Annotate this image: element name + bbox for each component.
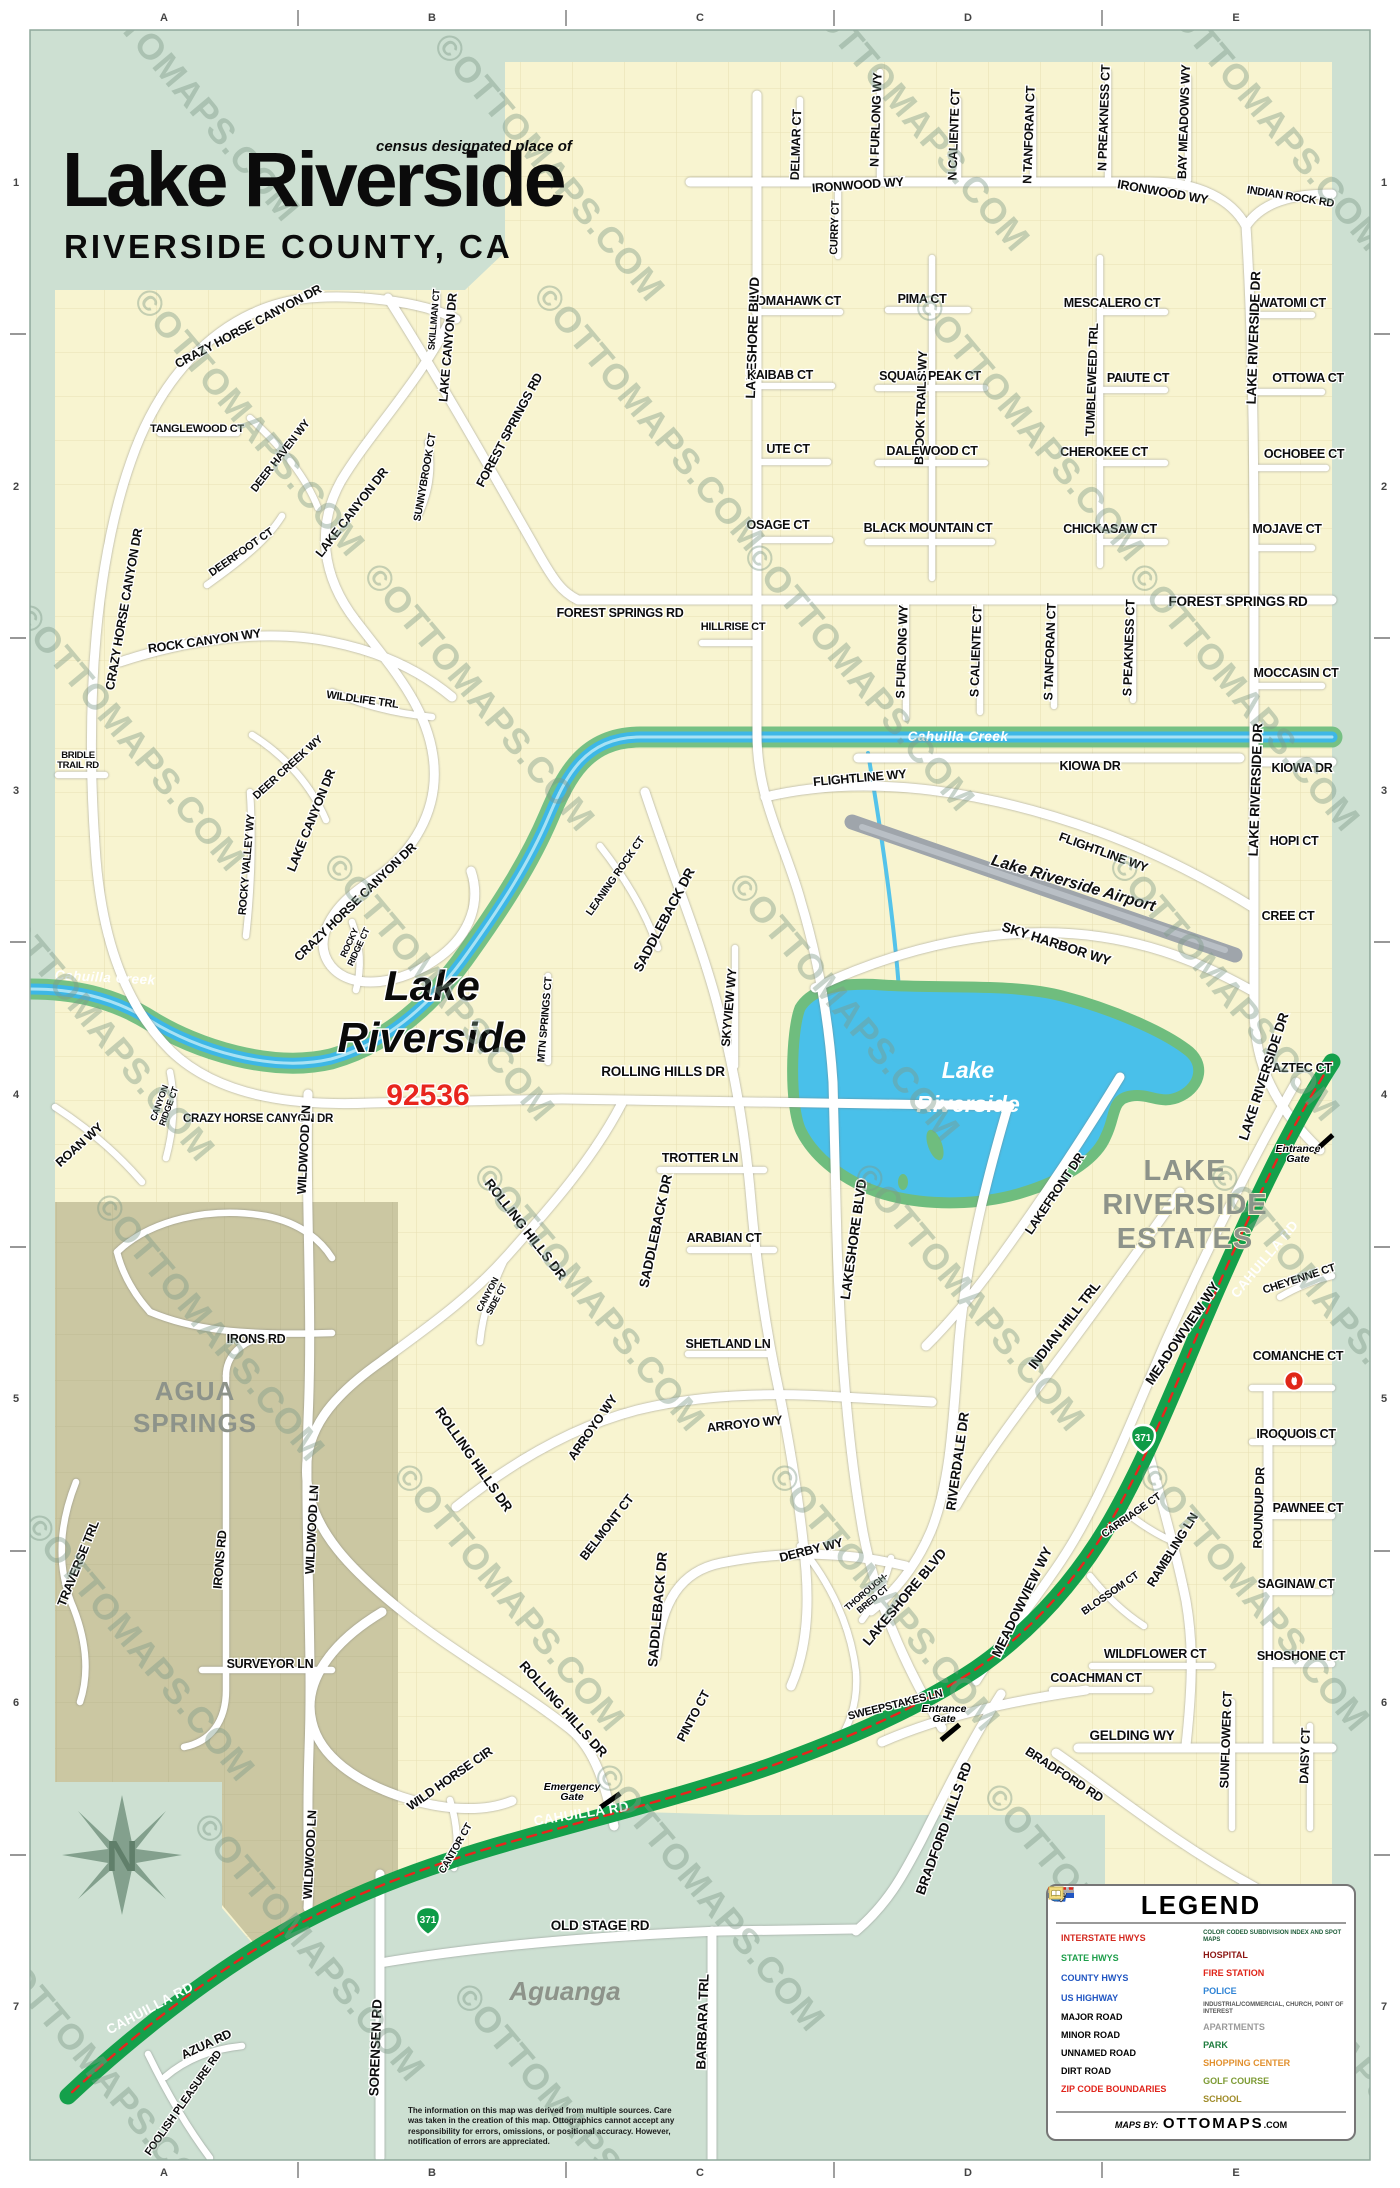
map-label: TOMAHAWK CT [749,294,841,308]
grid-row-label: 7 [1381,2001,1387,2013]
grid-row-label: 2 [13,481,19,493]
legend-title: LEGEND [1056,1890,1346,1924]
legend-golf: GOLF COURSE [1198,2072,1346,2090]
map-label: KIOWA DR [1059,759,1120,773]
map-label: GELDING WY [1090,1728,1175,1743]
grid-row-label: 1 [13,177,19,189]
svg-text:N: N [106,1832,138,1881]
grid-row-label: 6 [13,1697,19,1709]
legend-unnamed-road: UNNAMED ROAD [1056,2044,1192,2062]
map-label: 92536 [386,1079,469,1112]
map-label: COMANCHE CT [1253,1349,1344,1363]
grid-row-label: 4 [13,1089,20,1101]
legend-industrial: INDUSTRIAL/COMMERCIAL, CHURCH, POINT OF … [1198,2000,1346,2018]
fire-station-icon [1285,1372,1304,1391]
grid-col-label: A [160,2167,168,2179]
legend-hospital: HOSPITAL [1198,1946,1346,1964]
grid-col-label: B [428,2167,436,2179]
map-label: COACHMAN CT [1050,1671,1142,1685]
grid-col-label: C [696,12,704,24]
map-label: PAIUTE CT [1107,371,1170,385]
legend-credit: MAPS BY: OTTOMAPS.COM [1056,2111,1346,2133]
grid-col-label: C [696,2167,704,2179]
grid-row-label: 5 [1381,1393,1387,1405]
map-label: OCHOBEE CT [1264,447,1345,461]
map-page: 371 [0,0,1400,2188]
map-label: HILLRISE CT [701,621,766,633]
map-label: FOREST SPRINGS RD [557,606,684,620]
map-label: IROQUOIS CT [1256,1427,1336,1441]
grid-col-label: E [1232,12,1239,24]
map-label: OTTOWA CT [1272,371,1344,385]
grid-col-label: B [428,12,436,24]
grid-row-label: 7 [13,2001,19,2013]
map-label: ROUNDUP DR [1251,1467,1268,1549]
legend-police: POLICE [1198,1982,1346,2000]
map-label: TROTTER LN [662,1151,738,1165]
grid-row-label: 3 [13,785,19,797]
map-label: WILDFLOWER CT [1104,1647,1207,1661]
map-label: BLACK MOUNTAIN CT [864,521,993,535]
legend-major-road: MAJOR ROAD [1056,2008,1192,2026]
grid-row-label: 3 [1381,785,1387,797]
north-compass-icon: N [62,1795,182,1915]
map-label: WATOMI CT [1258,296,1326,310]
map-label: MESCALERO CT [1064,296,1161,310]
map-label: DELMAR CT [788,109,804,181]
map-label: ESTATES [1117,1223,1253,1255]
map-label: Lake [942,1057,995,1083]
legend-shopping: SHOPPING CENTER [1198,2054,1346,2072]
map-label: ROLLING HILLS DR [601,1064,725,1079]
map-label: ARABIAN CT [687,1231,762,1245]
map-label: DAISY CT [1297,1727,1313,1784]
disclaimer-text: The information on this map was derived … [408,2106,686,2148]
grid-row-label: 4 [1381,1089,1388,1101]
map-label: SHETLAND LN [686,1337,771,1351]
legend-state: 56 STATE HWYS [1056,1948,1192,1968]
map-label: BRIDLETRAIL RD [57,750,99,771]
map-label: CURRY CT [828,200,842,255]
map-label: HOPI CT [1270,834,1319,848]
map-label: MOJAVE CT [1252,522,1322,536]
map-label: MOCCASIN CT [1254,666,1340,680]
legend-school: SCHOOL [1198,2090,1346,2108]
legend-apartments: APARTMENTS [1198,2018,1346,2036]
map-label: OLD STAGE RD [551,1918,650,1933]
legend-dirt-road: DIRT ROAD [1056,2062,1192,2080]
legend-subdivision: 1 COLOR CODED SUBDIVISION INDEX AND SPOT… [1198,1928,1346,1946]
map-canvas: 371 [0,0,1400,2188]
grid-col-label: D [964,2167,972,2179]
grid-row-label: 6 [1381,1697,1387,1709]
map-label: DALEWOOD CT [886,444,978,458]
map-label: CREE CT [1262,909,1315,923]
map-label: KAIBAB CT [747,368,814,382]
map-label: SPRINGS [133,1408,257,1438]
legend-park: PARK [1198,2036,1346,2054]
legend-zip-boundaries: ZIP CODE BOUNDARIES [1056,2080,1192,2098]
grid-col-label: E [1232,2167,1239,2179]
grid-col-label: A [160,12,168,24]
grid-row-label: 1 [1381,177,1387,189]
grid-row-label: 2 [1381,481,1387,493]
page-title: Lake Riverside [62,136,564,225]
legend-minor-road: MINOR ROAD [1056,2026,1192,2044]
grid-row-label: 5 [13,1393,19,1405]
map-label: AGUA [155,1376,236,1406]
page-subtitle: RIVERSIDE COUNTY, CA [64,228,513,266]
map-area: N DELMAR CTN FURLONG WYN CALIENTE CTN TA… [0,0,1400,2188]
map-label: SURVEYOR LN [227,1657,314,1671]
map-label: PAWNEE CT [1273,1501,1344,1515]
grid-col-label: D [964,12,972,24]
legend-county: 57 COUNTY HWYS [1056,1968,1192,1988]
map-label: Aguanga [508,1976,620,2006]
legend-us: 131 US HIGHWAY [1056,1988,1192,2008]
legend: LEGEND 5 INTERSTATE HWYS 56 STATE HWYS 5… [1046,1884,1356,2141]
legend-interstate: 5 INTERSTATE HWYS [1056,1928,1192,1948]
map-label: UTE CT [766,442,810,456]
legend-fire-station: FIRE STATION [1198,1964,1346,1982]
